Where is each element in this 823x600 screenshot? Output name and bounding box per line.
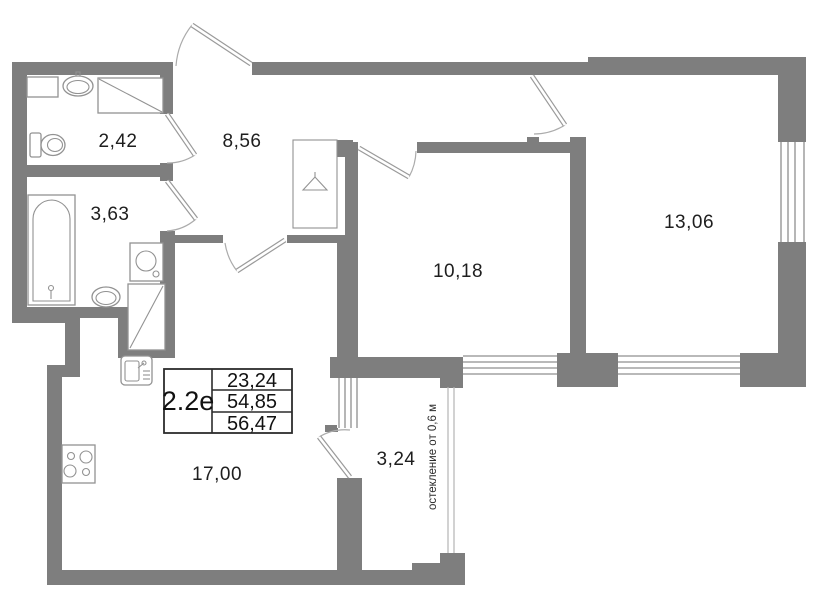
kitchen-door (225, 240, 285, 271)
wall-bedroom-top (417, 142, 573, 153)
wall-kitchen-right (337, 235, 353, 360)
wall-balcony-topright-pier (440, 357, 463, 388)
wall-bottom-right-pier (740, 353, 806, 387)
window-living-right (778, 142, 806, 242)
wall-right-upper-pier (778, 62, 806, 142)
bathroom-area-label: 3,63 (91, 204, 130, 225)
wall-wc-bath-divider (12, 165, 160, 177)
info-table: 2.2е 23,24 54,85 56,47 (162, 369, 292, 435)
area-value-1: 23,24 (227, 370, 277, 392)
glazing-note: остекление от 0,6 м (427, 404, 439, 510)
bathtub-icon (28, 195, 75, 305)
bathroom-door (167, 181, 196, 231)
window-bedroom-bottom (463, 353, 557, 387)
balcony-area-label: 3,24 (377, 449, 416, 470)
unit-type-label: 2.2е (162, 386, 215, 416)
wall-top-right (588, 57, 806, 75)
shower-tray-icon (98, 78, 163, 113)
wall-balcony-top (330, 357, 442, 378)
wall-wc-bath-stub (160, 163, 173, 181)
entrance-door (176, 25, 251, 66)
wall-right-lower-pier (778, 242, 806, 353)
wc-door (167, 114, 195, 163)
window-kitchen-balcony (337, 378, 359, 428)
bedroom-area-label: 10,18 (433, 261, 483, 282)
wall-left (12, 62, 27, 318)
wc-area-label: 2,42 (99, 131, 138, 152)
wall-shaft-left (118, 307, 128, 352)
sink-icon (92, 287, 120, 307)
kitchen-living-area-label: 17,00 (192, 464, 242, 485)
wall-kitchen-top-left (175, 235, 223, 243)
living-room-door (532, 76, 565, 134)
wall-balcony-partition-lower (337, 478, 362, 578)
area-value-2: 54,85 (227, 391, 277, 413)
toilet-icon (30, 133, 65, 157)
wall-bedroom-living-partition (570, 137, 586, 355)
wall-top-left (12, 62, 173, 75)
balcony-glazing (448, 387, 454, 553)
hallway-area-label: 8,56 (223, 131, 262, 152)
vent-shaft-icon (128, 284, 165, 350)
wall-living-door-nub (527, 137, 539, 143)
kitchen-sink-icon (121, 356, 152, 385)
living-room-area-label: 13,06 (664, 212, 714, 233)
wall-bottom-middle-pier (557, 353, 618, 387)
wall-top-middle (252, 62, 588, 75)
bedroom-door (359, 148, 416, 177)
stove-icon (62, 445, 95, 483)
window-living-bottom (618, 353, 740, 387)
wall-bedroom-top-stub (337, 142, 357, 153)
shelf-icon (27, 77, 58, 97)
wall-bottom (47, 570, 449, 585)
wall-balcony-bottom-pier (440, 553, 465, 585)
wall-left-lower (47, 365, 62, 575)
balcony-door (319, 430, 350, 477)
washbasin-icon (63, 72, 93, 96)
floor-plan-page: 2.2е 23,24 54,85 56,47 2,42 8,56 3,63 10… (0, 0, 823, 600)
washing-machine-icon (130, 243, 163, 281)
area-value-3: 56,47 (227, 413, 277, 435)
floor-plan: 2.2е 23,24 54,85 56,47 2,42 8,56 3,63 10… (0, 0, 823, 600)
wardrobe-hanger-icon (293, 140, 337, 228)
